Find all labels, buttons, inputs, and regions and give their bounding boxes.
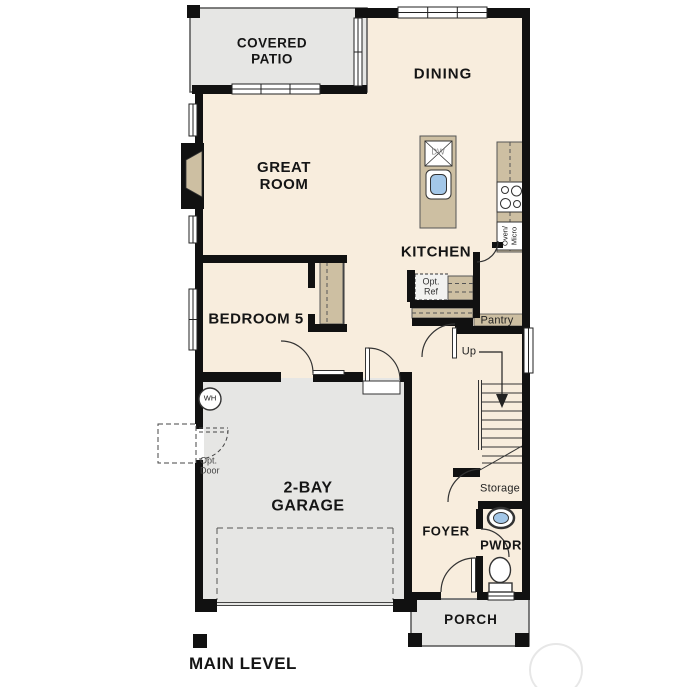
patio-side-window	[354, 18, 362, 86]
patio-slider-window	[232, 84, 320, 94]
garage-entry-threshold	[363, 381, 400, 394]
hall-door-leaf	[453, 328, 457, 358]
opt-ref-label: Opt. Ref	[418, 277, 444, 298]
garage-entry-door-leaf	[366, 348, 370, 381]
storage-label: Storage	[480, 483, 520, 496]
bedroom-door-leaf	[313, 371, 344, 375]
great-room-window-2	[189, 216, 197, 243]
bedroom5-label: BEDROOM 5	[208, 310, 303, 327]
porch-label: PORCH	[444, 612, 498, 628]
pwdr-window	[488, 592, 514, 600]
oven-micro-line2: Micro	[510, 226, 519, 246]
dining-label: DINING	[414, 65, 473, 82]
kitchen-sink	[426, 170, 451, 199]
covered-patio-label: COVERED PATIO	[232, 35, 312, 66]
fireplace	[181, 143, 204, 209]
watermark-circle	[530, 644, 582, 687]
powder-sink	[488, 508, 514, 528]
dishwasher-label: DW	[431, 147, 444, 156]
page-title: MAIN LEVEL	[189, 654, 297, 674]
kitchen-label: KITCHEN	[401, 243, 471, 260]
closet-shelf	[320, 258, 344, 330]
oven-micro-label: Oven/ Micro	[501, 226, 518, 246]
stair-window	[524, 328, 533, 373]
floor-plan: COVERED PATIO DINING GREAT ROOM KITCHEN …	[0, 0, 687, 687]
bedroom-window	[189, 289, 197, 350]
toilet	[489, 558, 512, 593]
pantry-label: Pantry	[481, 315, 514, 328]
up-label: Up	[462, 346, 476, 359]
water-heater-label: WH	[204, 395, 217, 404]
front-door-leaf	[472, 558, 476, 592]
cooktop	[497, 182, 523, 212]
great-room-label: GREAT ROOM	[249, 159, 319, 194]
opt-door-label: Opt. Door	[200, 456, 230, 477]
pwdr-label: PWDR	[480, 539, 522, 554]
great-room-window-1	[189, 104, 197, 136]
garage-label: 2-BAY GARAGE	[263, 480, 353, 517]
foyer-label: FOYER	[422, 525, 469, 540]
floor-plan-drawing	[0, 0, 687, 687]
dining-window	[398, 7, 487, 18]
